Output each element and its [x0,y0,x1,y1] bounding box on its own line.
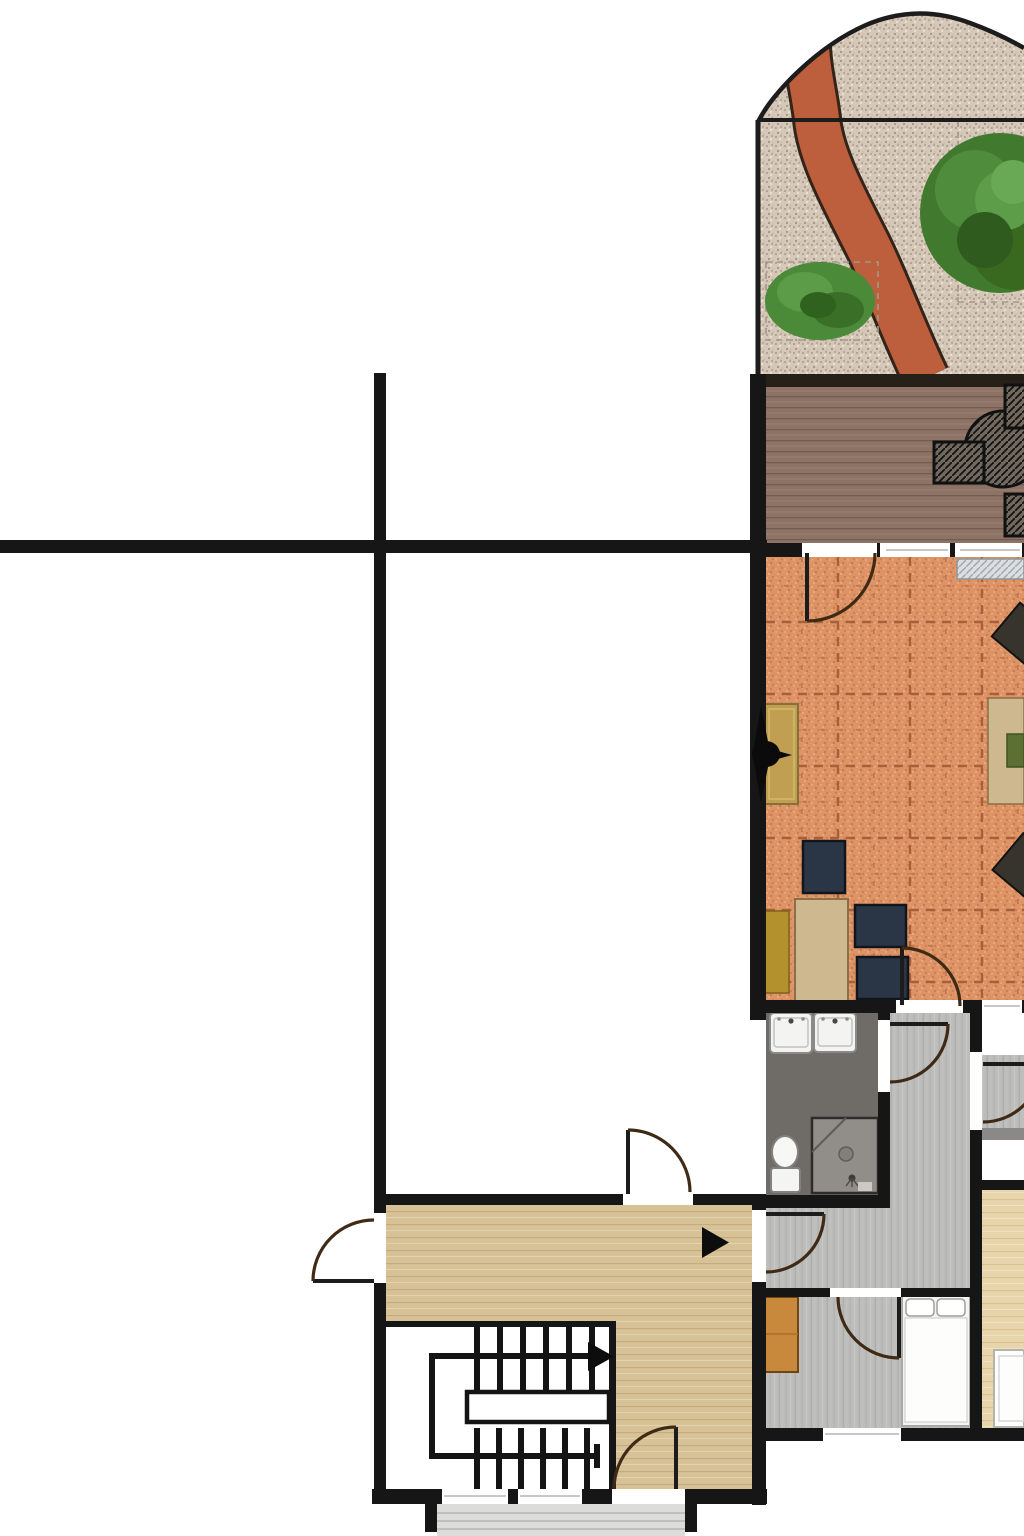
bathroom [766,1013,878,1195]
opening-entryroom-door [970,1052,982,1130]
bedroom [764,1296,970,1428]
stair-landing-bar [467,1392,609,1422]
dining-sideboard-mustard [765,911,789,993]
hallway-floor-vertical [890,1013,970,1293]
shower-drain [839,1147,853,1161]
shower-label-chip [858,1182,872,1191]
living-room [765,557,1024,1001]
deck-terrace [752,374,1024,543]
opening-entrance-door [612,1489,685,1504]
wall-right-rooms-divider [982,1180,1024,1190]
dining-chair-east-1 [855,905,906,947]
bathroom-sink-right [814,1013,856,1052]
shower [812,1118,878,1193]
opening-living-hall-door [896,1000,963,1013]
hallway-floor-horizontal [766,1208,890,1293]
entry-room-threshold [982,1128,1024,1140]
dining-chair-north [803,841,845,893]
opening-hall-door [752,1210,766,1282]
floor-plan-page [0,0,1024,1536]
wall-main-vertical [374,373,386,1504]
deck-chair-south [1005,494,1024,536]
bed-pillow-left [906,1299,934,1316]
stairwell [386,1205,752,1489]
deck-garden-divider-wall [752,374,1024,387]
wall-porch-stub-left [425,1504,437,1532]
opening-bedroom-door [830,1288,901,1297]
stair-void-border-top [386,1321,615,1327]
bed-pillow-right [937,1299,965,1316]
entrance-steps [437,1504,685,1536]
opening-bathroom-door [878,1020,890,1092]
garden-shrub [765,262,875,340]
wall-porch-stub-right [685,1504,697,1532]
deck-chair-north [1005,385,1024,428]
wall-stairwell-top [374,1194,765,1205]
opening-upperroom-door [623,1194,693,1205]
deck-chair-west [934,442,984,483]
living-sideboard-hatched [957,559,1024,579]
floor-plan-svg [0,0,1024,1536]
opening-leftroom-door [374,1213,386,1283]
opening-living-terrace-door [802,543,877,557]
side-table-plant [1007,734,1024,767]
dining-table [795,899,848,1001]
right-entry-room [982,1013,1024,1180]
wall-west-of-deck-living [750,374,766,1020]
wall-bathroom-south [752,1195,890,1208]
bed [902,1296,970,1426]
right-bedroom-beige [982,1190,1024,1428]
bathroom-sink-left [770,1013,812,1053]
